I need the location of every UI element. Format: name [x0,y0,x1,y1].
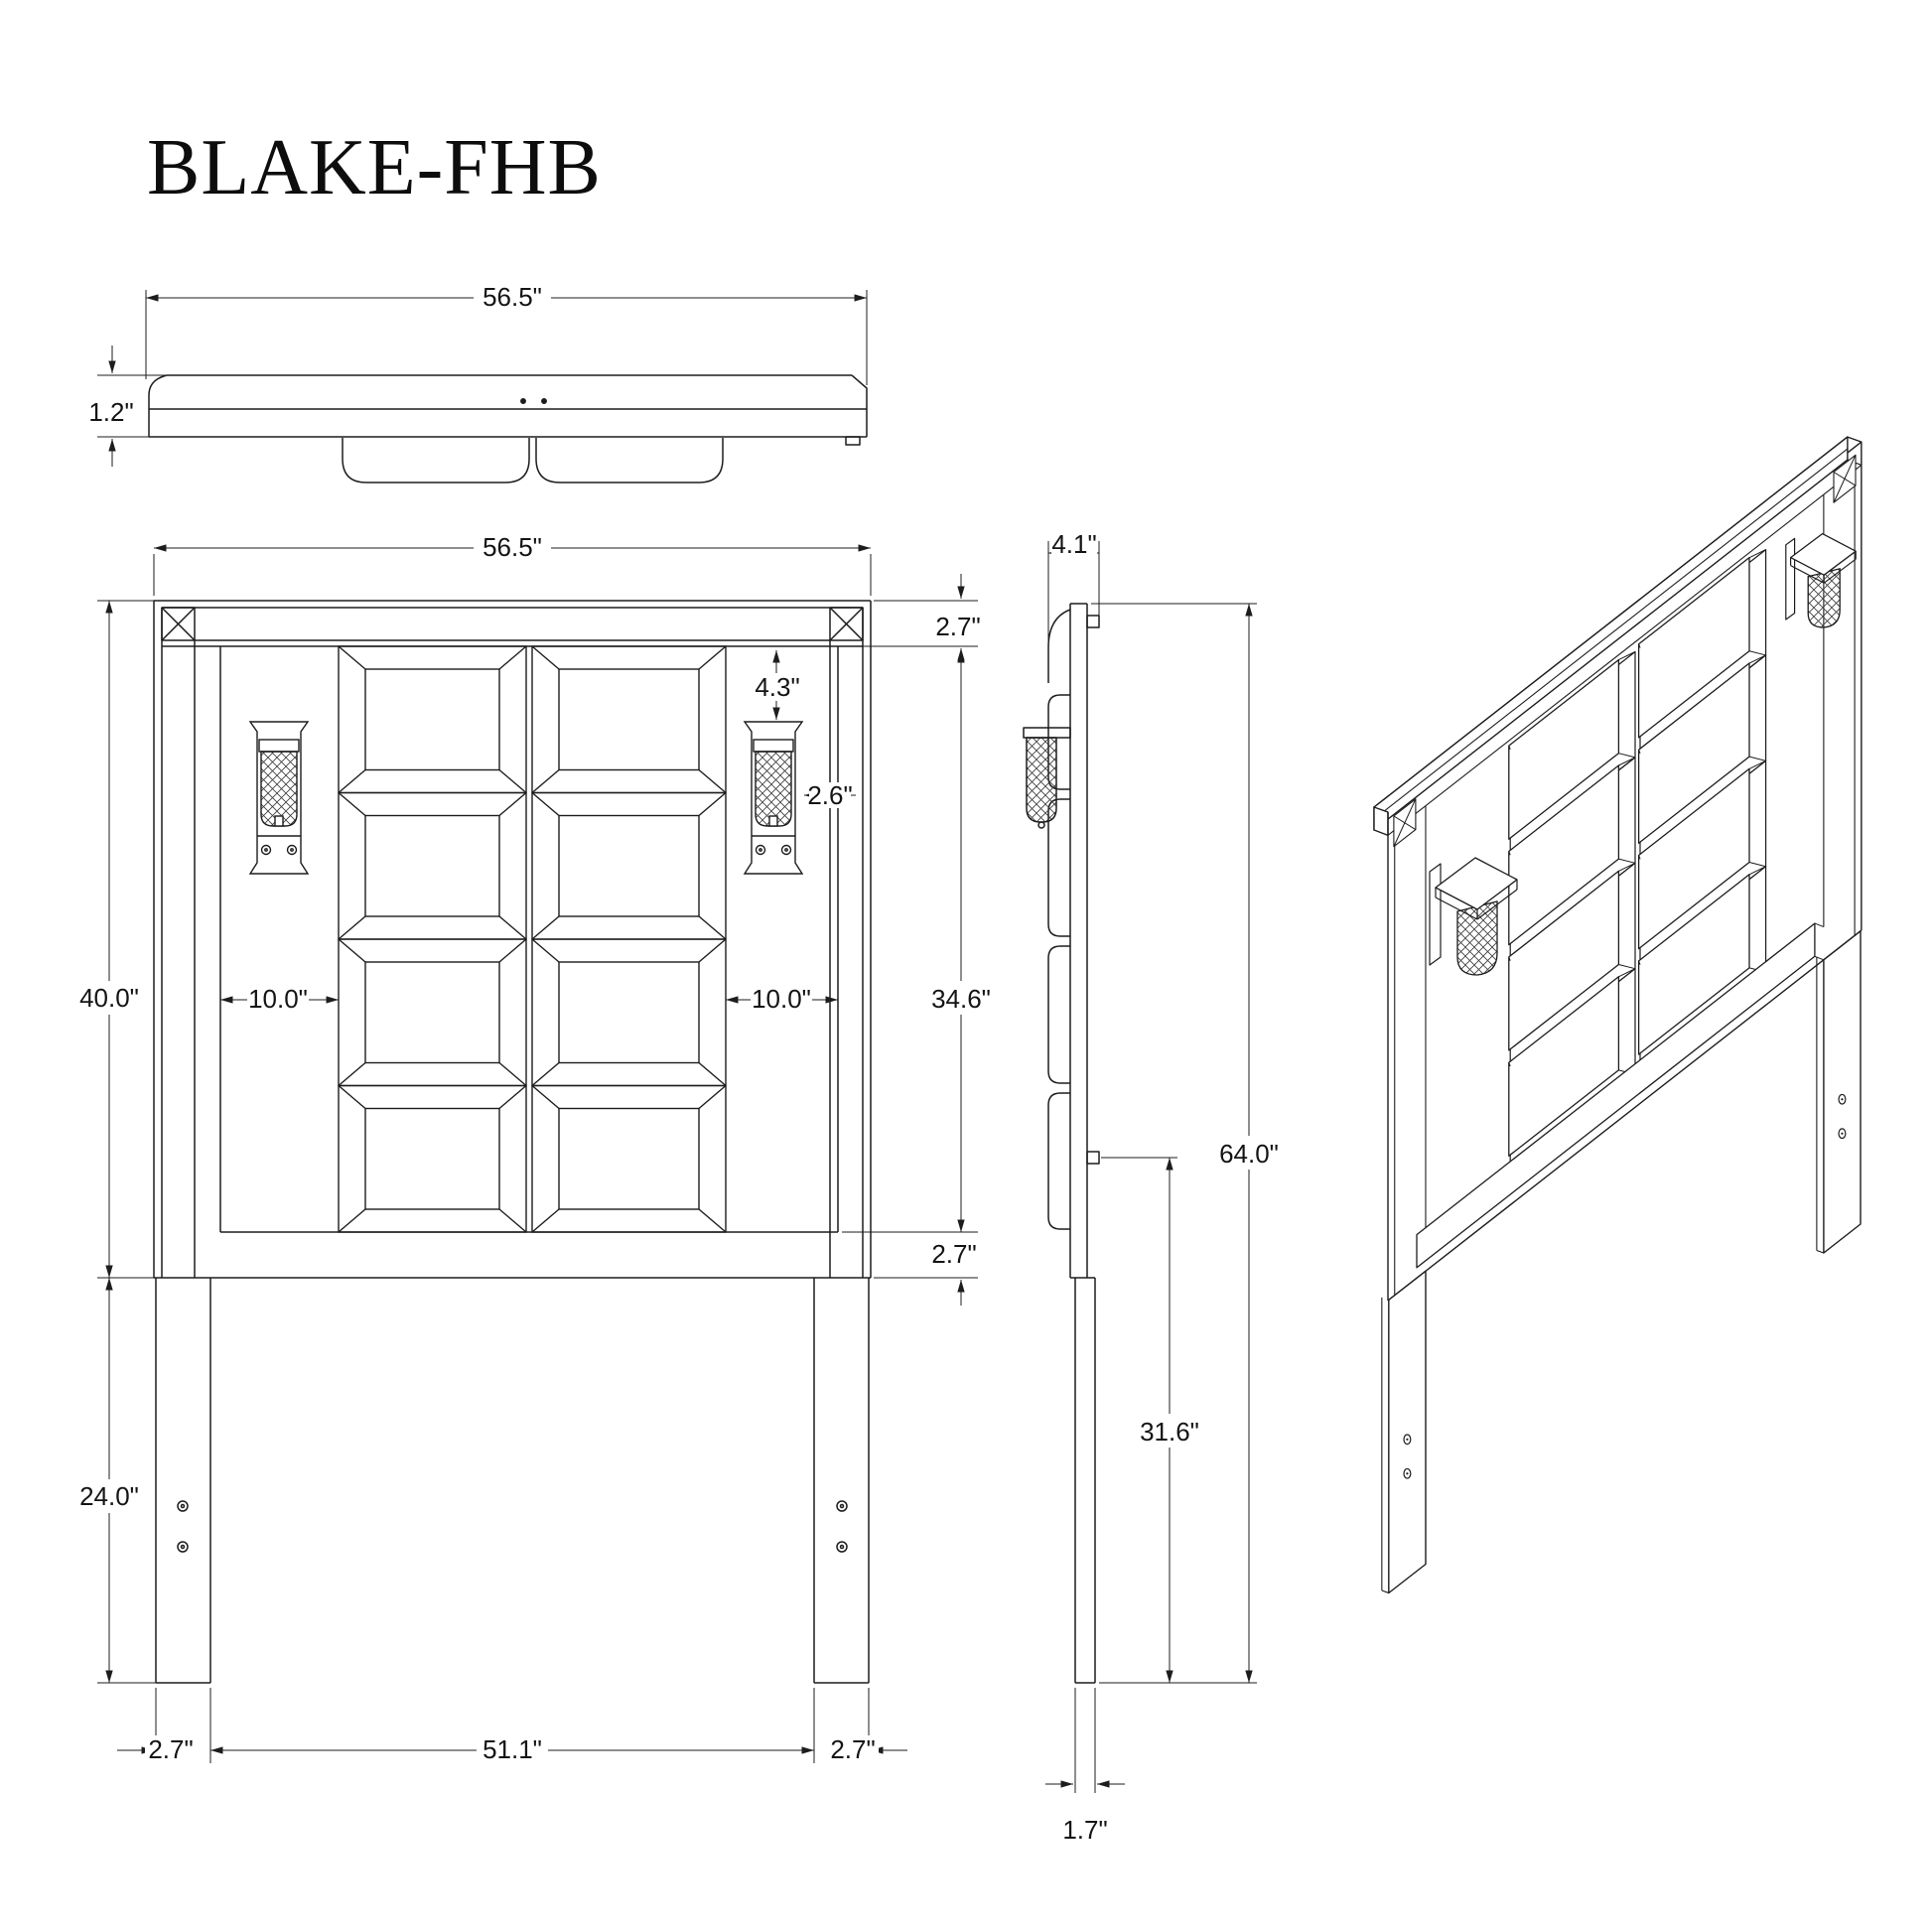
dim-leg-depth: 1.7" [1062,1815,1107,1845]
drawing-title: BLAKE-FHB [147,124,602,211]
dim-right-leg-width: 2.7" [830,1734,875,1764]
dim-top-rail: 2.7" [935,612,980,641]
dim-overall-height: 64.0" [1219,1139,1279,1169]
dim-top-thickness: 1.2" [88,397,133,427]
dim-right-panel-inset: 10.0" [752,984,811,1014]
technical-drawing: BLAKE-FHB 56.5" 1.2" [0,0,1932,1932]
dim-headboard-height: 40.0" [79,983,139,1013]
dim-overall-depth: 4.1" [1051,529,1096,559]
isometric-view [1374,437,1862,1592]
dim-inner-span: 51.1" [483,1734,542,1764]
dim-front-overall-width: 56.5" [483,532,542,562]
dim-top-overall-width: 56.5" [483,282,542,312]
dim-sconce-top-offset: 4.3" [755,672,799,702]
left-sconce [250,722,308,874]
top-view-dimensions [97,290,867,467]
panel-grid [339,646,726,1232]
dim-left-panel-inset: 10.0" [248,984,308,1014]
right-sconce [745,722,802,874]
drawing-sheet: BLAKE-FHB 56.5" 1.2" [0,0,1932,1932]
dim-left-leg-width: 2.7" [148,1734,193,1764]
top-view: 56.5" 1.2" [81,282,867,483]
dim-inner-panel-height: 34.6" [931,984,991,1014]
front-view-dimensions [97,548,978,1763]
dim-sconce-side-gap: 2.6" [807,780,852,810]
side-view: 4.1" 64.0" 31.6" 1.7" [1024,529,1287,1845]
dim-leg-length: 24.0" [79,1481,139,1511]
front-view: 56.5" 2.7" 4.3" 2.6" 34.6" 2.7" 40.0" 24… [73,532,997,1764]
dim-bracket-to-floor: 31.6" [1140,1417,1199,1447]
dim-bottom-rail: 2.7" [931,1239,976,1269]
